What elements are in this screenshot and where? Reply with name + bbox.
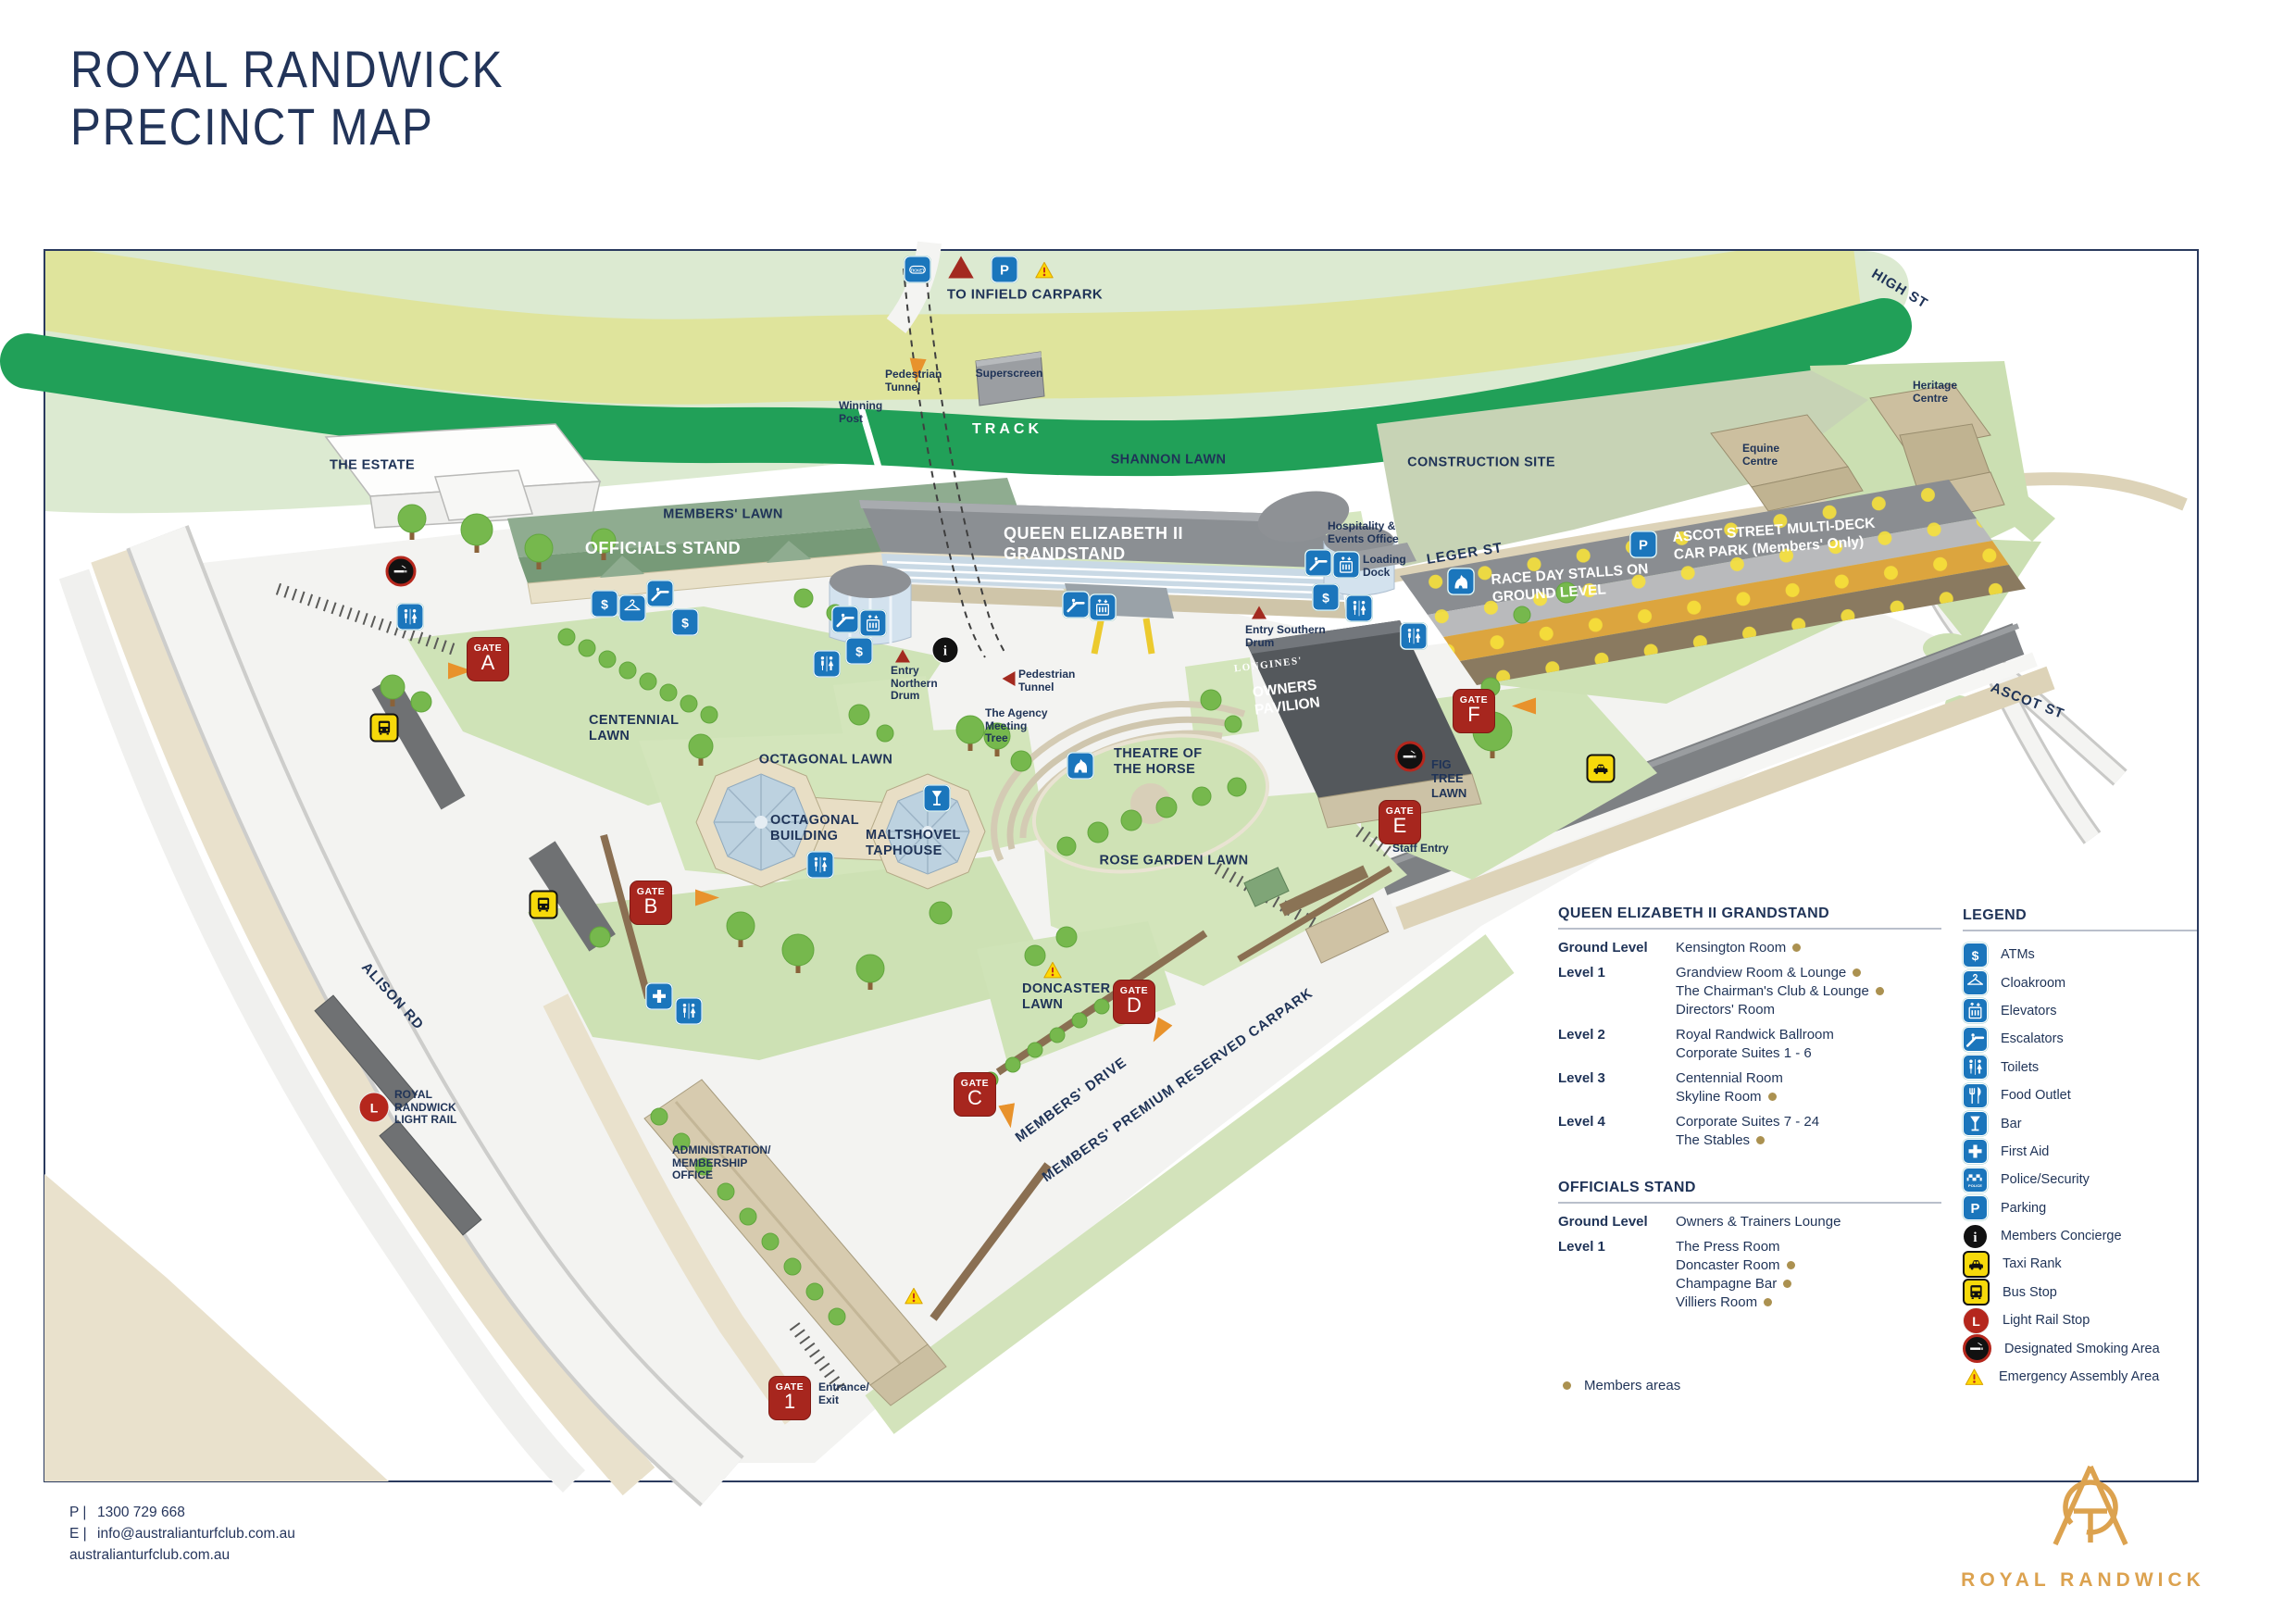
bus-icon (530, 891, 558, 919)
gate-c-badge: GATEC (954, 1072, 996, 1117)
legend-item-emergency-assembly-area: Emergency Assembly Area (1963, 1363, 2199, 1391)
gate-flag-marker (1512, 693, 1536, 715)
legend-item-bar: Bar (1963, 1109, 2199, 1137)
elevator-icon (1090, 594, 1117, 621)
elevator-icon (860, 610, 887, 637)
svg-text:$: $ (1322, 590, 1329, 605)
panel-row-level-1: Level 1The Press RoomDoncaster RoomChamp… (1558, 1238, 1947, 1312)
svg-text:$: $ (1972, 947, 1979, 962)
gate-1-badge: GATE1 (768, 1376, 811, 1420)
label-centennial-lawn: CENTENNIAL LAWN (589, 713, 679, 744)
parking-icon: P (1630, 531, 1657, 558)
legend-item-members-concierge: iMembers Concierge (1963, 1222, 2199, 1250)
label-octagonal-building: OCTAGONAL BUILDING (770, 813, 859, 844)
label-track: TRACK (972, 421, 1042, 438)
label-equine-centre: Equine Centre (1742, 443, 1779, 468)
emergency-icon (1041, 958, 1066, 983)
label-superscreen: Superscreen (976, 368, 1043, 381)
elevator-icon (1333, 552, 1360, 579)
elevator-icon (1963, 998, 1988, 1023)
label-octagonal-lawn: OCTAGONAL LAWN (759, 752, 892, 768)
label-entry-northern-drum: Entry Northern Drum (891, 665, 938, 703)
label-shannon-lawn: SHANNON LAWN (1111, 452, 1227, 468)
cloak-icon (619, 595, 646, 622)
gate-d-badge: GATED (1113, 980, 1155, 1024)
emergency-icon (1032, 258, 1057, 283)
label-members-lawn: MEMBERS' LAWN (663, 506, 782, 522)
emergency-icon (902, 1284, 927, 1309)
legend-item-toilets: Toilets (1963, 1054, 2199, 1081)
cloak-icon (1963, 970, 1988, 995)
escalator-icon (1063, 592, 1090, 618)
gate-flag-marker (993, 1103, 1018, 1131)
label-royal-randwick-light-rail: ROYAL RANDWICK LIGHT RAIL (394, 1089, 456, 1127)
toilets-icon (1963, 1055, 1988, 1080)
atm-icon: $ (592, 591, 618, 618)
toilets-icon (676, 998, 703, 1025)
atm-icon: $ (672, 609, 699, 636)
atc-logo-wordmark: ROYAL RANDWICK (1926, 1569, 2240, 1592)
footer-email[interactable]: info@australianturfclub.com.au (97, 1526, 295, 1542)
svg-text:$: $ (681, 615, 689, 630)
svg-text:$: $ (855, 643, 863, 658)
firstaid-icon (1963, 1139, 1988, 1164)
label-to-infield-carpark: TO INFIELD CARPARK (947, 287, 1103, 303)
legend-item-taxi-rank: Taxi Rank (1963, 1250, 2199, 1278)
parking-icon: P (1963, 1195, 1988, 1220)
legend-item-parking: PParking (1963, 1194, 2199, 1222)
panel-row-level-2: Level 2Royal Randwick BallroomCorporate … (1558, 1026, 1947, 1063)
atm-icon: $ (1963, 943, 1988, 968)
panel-row-level-1: Level 1Grandview Room & LoungeThe Chairm… (1558, 964, 1947, 1019)
escalator-icon (832, 606, 859, 633)
firstaid-icon (646, 983, 673, 1010)
bus-icon (1963, 1279, 1990, 1305)
bus-icon (370, 714, 399, 743)
legend-item-bus-stop: Bus Stop (1963, 1279, 2199, 1306)
footer-phone: 1300 729 668 (97, 1505, 185, 1520)
qe2-grandstand-panel: QUEEN ELIZABETH II GRANDSTAND Ground Lev… (1558, 906, 1947, 1156)
svg-text:i: i (943, 643, 947, 658)
label-rose-garden-lawn: ROSE GARDEN LAWN (1099, 853, 1248, 868)
legend-panel: LEGEND $ATMsCloakroomElevatorsEscalators… (1963, 907, 2199, 1391)
label-pedestrian-tunnel: Pedestrian Tunnel (885, 369, 942, 394)
label-doncaster-lawn: DONCASTER LAWN (1022, 981, 1110, 1013)
concierge-icon: i (932, 637, 959, 664)
panel-row-ground-level: Ground LevelOwners & Trainers Lounge (1558, 1213, 1947, 1231)
gate-a-badge: GATEA (467, 637, 509, 681)
bar-icon (924, 785, 951, 812)
svg-text:P: P (1000, 264, 1009, 279)
label-queen-elizabeth-ii-grandstand: QUEEN ELIZABETH II GRANDSTAND (1004, 524, 1183, 565)
label-pedestrian-tunnel: Pedestrian Tunnel (1018, 668, 1075, 693)
gate-b-badge: GATEB (630, 881, 672, 925)
legend-item-light-rail-stop: LLight Rail Stop (1963, 1306, 2199, 1334)
officials-stand-panel: OFFICIALS STAND Ground LevelOwners & Tra… (1558, 1180, 1947, 1318)
ticket-icon: TICKET (905, 256, 931, 283)
gate-flag-marker (695, 890, 719, 911)
smoking-icon (1963, 1334, 1991, 1363)
escalator-icon (1963, 1027, 1988, 1052)
escalator-icon (647, 581, 674, 607)
legend-item-elevators: Elevators (1963, 997, 2199, 1025)
taxi-icon (1587, 755, 1616, 783)
panel-row-ground-level: Ground LevelKensington Room (1558, 939, 1947, 957)
smoking-icon (386, 556, 417, 587)
svg-text:L: L (1972, 1314, 1980, 1329)
label-entrance-exit: Entrance/ Exit (818, 1381, 869, 1406)
label-winning-post: Winning Post (839, 400, 882, 425)
legend-item-police-security: POLICEPolice/Security (1963, 1166, 2199, 1193)
concierge-icon: i (1963, 1224, 1988, 1249)
gate-e-badge: GATEE (1379, 800, 1421, 844)
svg-text:P: P (1971, 1202, 1980, 1217)
legend-title: LEGEND (1963, 907, 2199, 924)
horse-icon (1448, 568, 1475, 595)
toilets-icon (1401, 623, 1428, 650)
food-icon (1963, 1083, 1988, 1108)
svg-text:TICKET: TICKET (910, 268, 925, 272)
label-maltshovel-taphouse: MALTSHOVEL TAPHOUSE (866, 828, 961, 859)
bar-icon (1963, 1111, 1988, 1136)
entry-arrow-marker (1252, 606, 1267, 624)
escalator-icon (1305, 550, 1332, 577)
label-entry-southern-drum: Entry Southern Drum (1245, 624, 1326, 649)
svg-text:P: P (1639, 539, 1648, 554)
toilets-icon (1346, 595, 1373, 622)
legend-item-atms: $ATMs (1963, 941, 2199, 968)
legend-item-escalators: Escalators (1963, 1025, 2199, 1053)
parking-icon: P (992, 256, 1018, 283)
toilets-icon (397, 604, 424, 631)
label-loading-dock: Loading Dock (1363, 554, 1406, 579)
label-officials-stand: OFFICIALS STAND (585, 539, 741, 559)
horse-icon (1067, 753, 1094, 780)
footer-contact: P |1300 729 668 E |info@australianturfcl… (69, 1502, 295, 1566)
map-canvas (0, 0, 2296, 1624)
toilets-icon (814, 651, 841, 678)
emergency-icon (1963, 1366, 1986, 1389)
legend-item-cloakroom: Cloakroom (1963, 968, 2199, 996)
label-construction-site: CONSTRUCTION SITE (1407, 455, 1555, 470)
footer-website[interactable]: australianturfclub.com.au (69, 1547, 230, 1563)
entry-arrow-marker (948, 256, 974, 283)
label-fig-tree-lawn: FIG TREE LAWN (1431, 757, 1466, 800)
label-the-agency-meeting-tree: The Agency Meeting Tree (985, 707, 1048, 745)
lightrail-icon: L (1963, 1307, 1990, 1334)
label-heritage-centre: Heritage Centre (1913, 380, 1957, 405)
atm-icon: $ (1313, 584, 1340, 611)
precinct-map-page: ROYAL RANDWICK PRECINCT MAP (0, 0, 2296, 1624)
atm-icon: $ (846, 638, 873, 665)
gate-f-badge: GATEF (1453, 689, 1495, 733)
legend-item-food-outlet: Food Outlet (1963, 1081, 2199, 1109)
svg-text:$: $ (601, 596, 608, 611)
label-theatre-of-the-horse: THEATRE OF THE HORSE (1114, 746, 1203, 778)
toilets-icon (807, 852, 834, 879)
lightrail-icon: L (359, 1093, 390, 1123)
legend-item-designated-smoking-area: Designated Smoking Area (1963, 1334, 2199, 1362)
svg-text:L: L (370, 1100, 379, 1115)
label-staff-entry: Staff Entry (1392, 843, 1449, 856)
members-areas-note: Members areas (1563, 1378, 1680, 1393)
members-dot (1563, 1381, 1571, 1390)
taxi-icon (1963, 1251, 1990, 1278)
label-the-estate: THE ESTATE (330, 457, 415, 473)
label-administration-membership-office: ADMINISTRATION/ MEMBERSHIP OFFICE (672, 1144, 770, 1182)
entry-arrow-marker (1003, 671, 1020, 686)
legend-item-first-aid: First Aid (1963, 1138, 2199, 1166)
police-icon: POLICE (1963, 1168, 1988, 1193)
smoking-icon (1395, 742, 1426, 772)
panel-row-level-4: Level 4Corporate Suites 7 - 24The Stable… (1558, 1113, 1947, 1150)
svg-text:POLICE: POLICE (1968, 1183, 1982, 1188)
panel-row-level-3: Level 3Centennial RoomSkyline Room (1558, 1069, 1947, 1106)
officials-panel-title: OFFICIALS STAND (1558, 1180, 1947, 1196)
svg-text:i: i (1973, 1230, 1977, 1244)
label-hospitality-events-office: Hospitality & Events Office (1328, 520, 1399, 545)
atc-logo-icon (2033, 1461, 2148, 1565)
qe2-panel-title: QUEEN ELIZABETH II GRANDSTAND (1558, 906, 1947, 922)
